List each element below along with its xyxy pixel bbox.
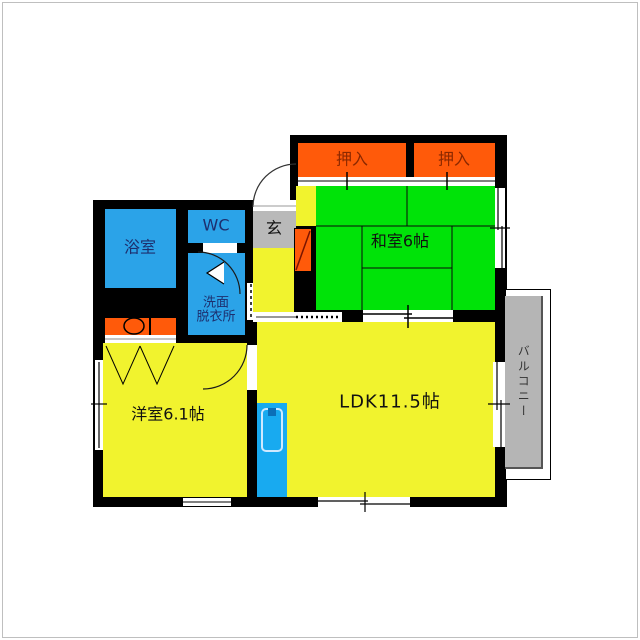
wc-label: WC [203,218,230,235]
oshiire-left-label: 押入 [336,152,368,169]
genkan-label: 玄 [266,221,282,238]
youshitsu-west-window-lines [91,362,107,448]
senmen-label: 洗面 脱衣所 [196,296,235,323]
plan-linework [0,0,640,640]
oshiire-right-label: 押入 [438,152,470,169]
ldk-window-lines [318,492,410,512]
bath-label: 浴室 [124,240,156,257]
ldk-label: LDK11.5帖 [339,394,441,413]
washitsu-sliding-panels [363,305,453,328]
balcony-label: バルコニー [517,345,530,420]
closet-bifold-marks [106,346,174,384]
washitsu-label: 和室6帖 [371,234,429,251]
bath-door-mark [207,262,224,284]
washitsu-window-lines [490,188,510,268]
entrance-door-arc [253,164,296,207]
youshitsu-door-arc [203,345,247,389]
floor-plan-image: 押入 押入 和室6帖 浴室 WC 洗面 脱衣所 玄 洋室6.1帖 LDK11.5… [0,0,640,640]
senmen-label-line1: 洗面 [196,296,235,310]
washer-circle [124,318,144,334]
shoe-cabinet-diagonal [296,231,310,270]
youshitsu-label: 洋室6.1帖 [131,407,204,424]
fusuma-ticks [298,172,495,190]
balcony-door-lines [488,362,510,447]
senmen-label-line2: 脱衣所 [196,310,235,324]
